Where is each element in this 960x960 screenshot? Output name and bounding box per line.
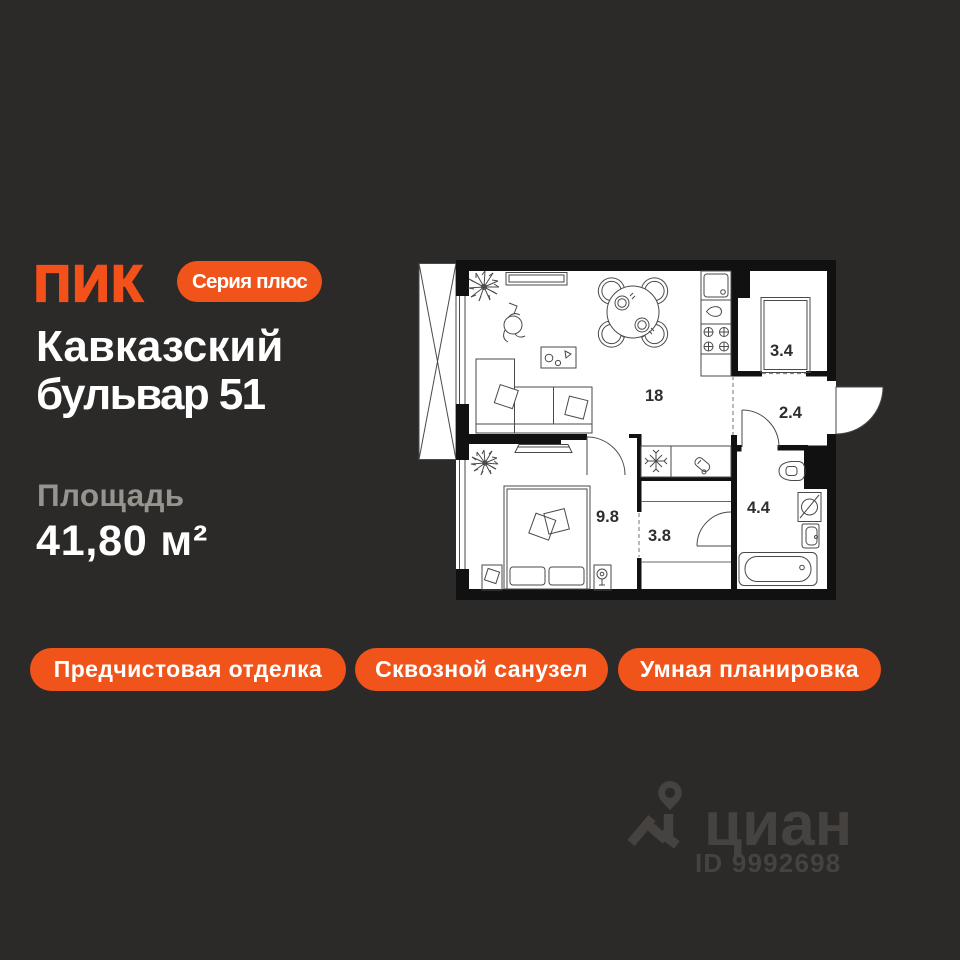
svg-text:3.4: 3.4 bbox=[770, 342, 794, 360]
svg-text:ID 9992698: ID 9992698 bbox=[695, 848, 841, 878]
svg-text:3.8: 3.8 bbox=[648, 527, 671, 545]
svg-text:18: 18 bbox=[645, 387, 663, 405]
svg-text:9.8: 9.8 bbox=[596, 508, 619, 526]
svg-text:4.4: 4.4 bbox=[747, 499, 771, 517]
svg-text:2.4: 2.4 bbox=[779, 404, 803, 422]
